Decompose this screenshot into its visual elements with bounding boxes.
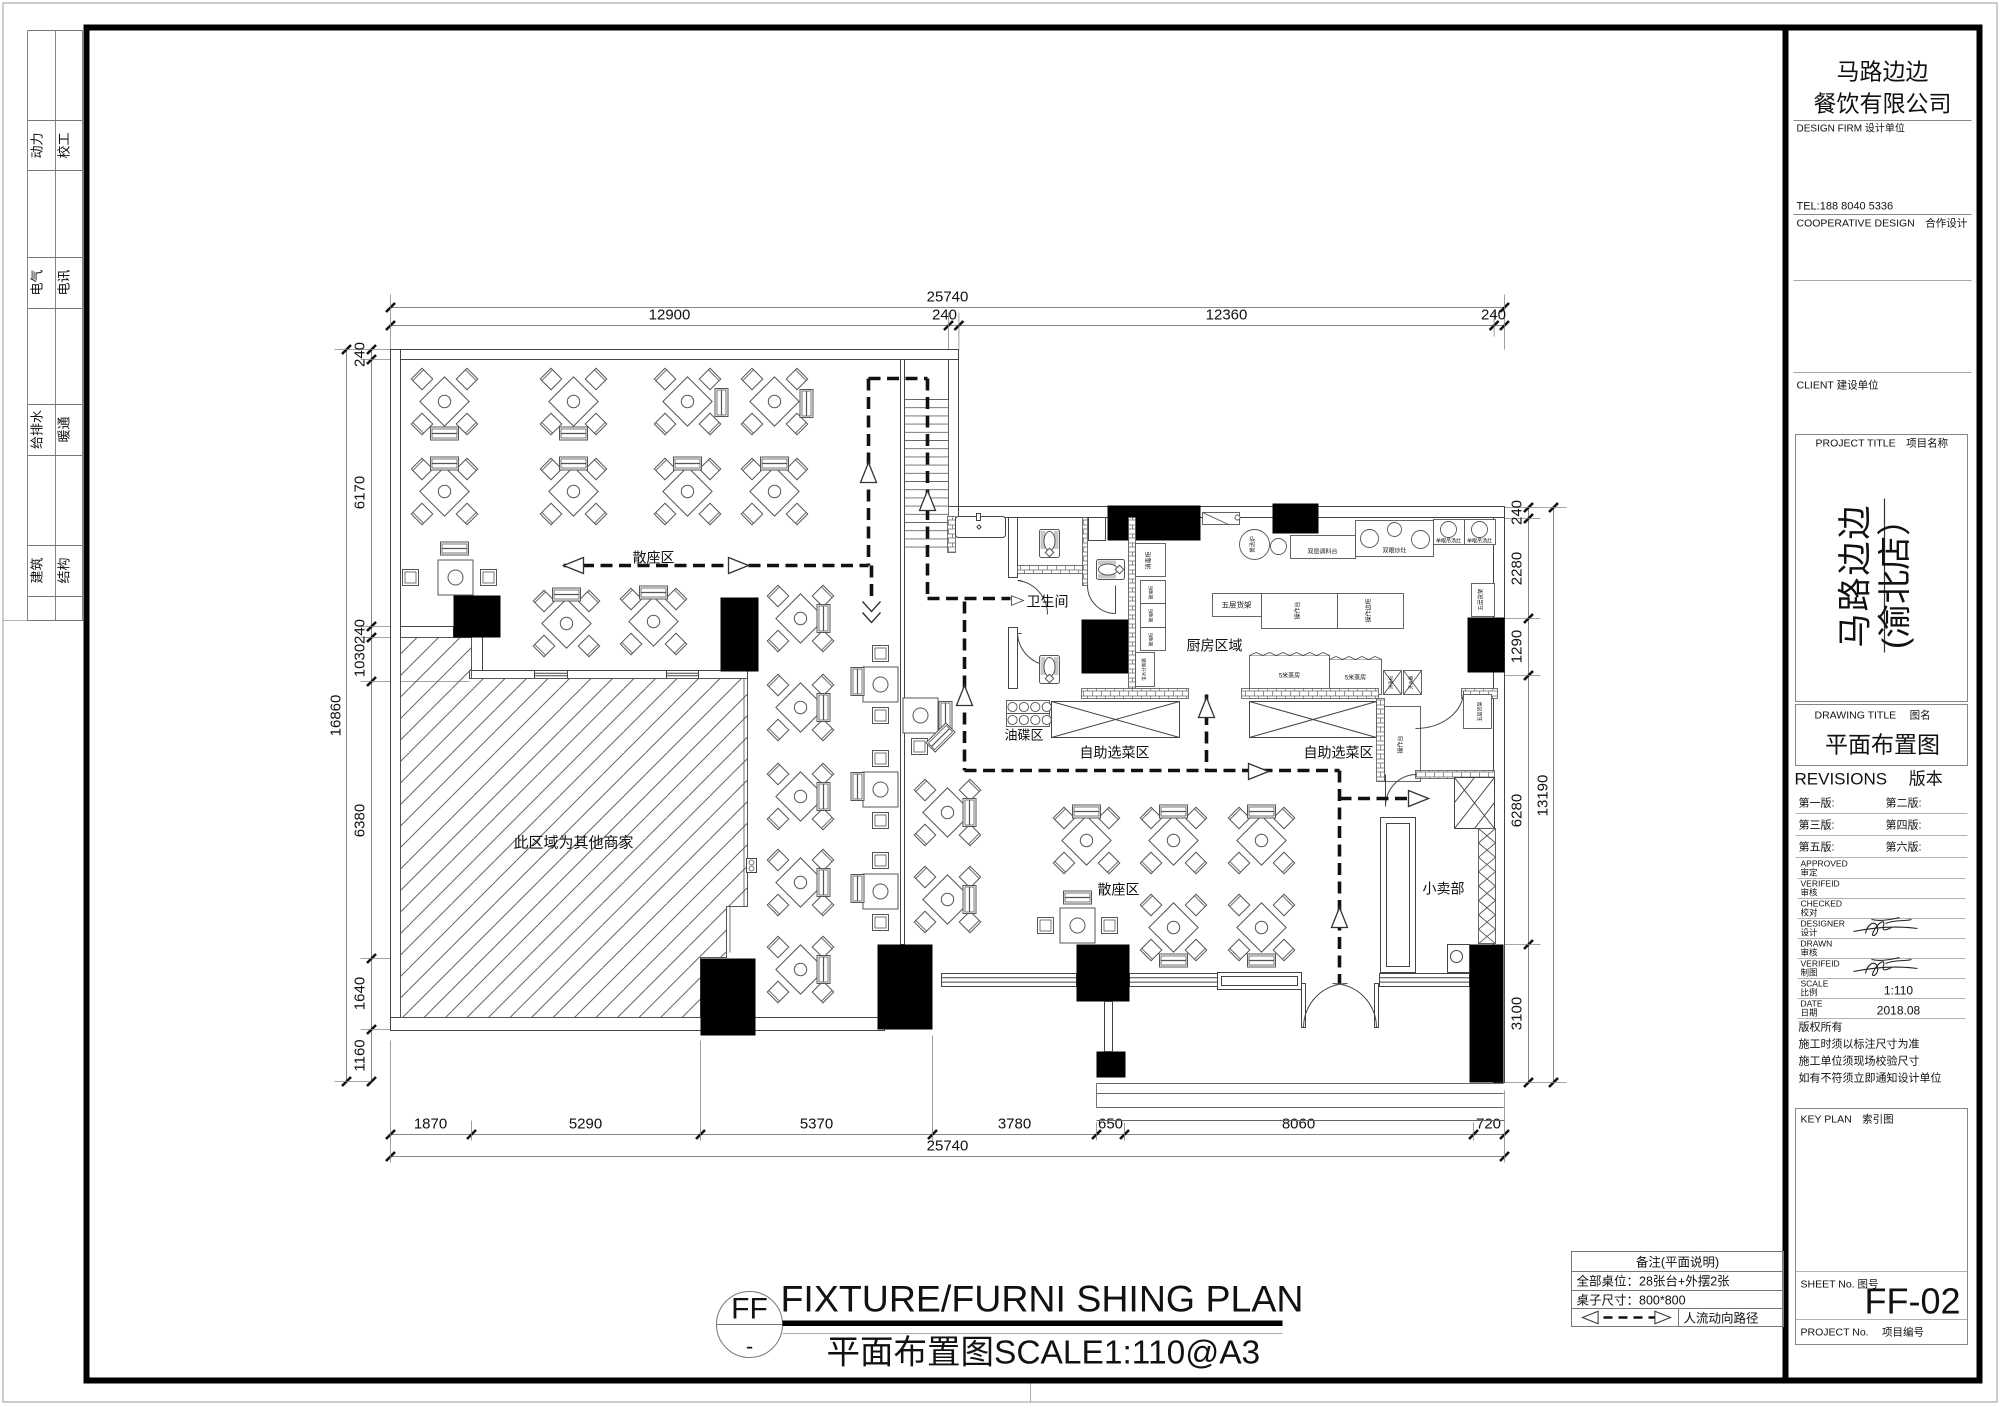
svg-text:1640: 1640 [352,977,369,1010]
svg-text:12360: 12360 [1206,307,1248,324]
svg-text:第三版:: 第三版: [1799,818,1835,832]
svg-text:3100: 3100 [1509,997,1526,1030]
svg-text:散座区: 散座区 [1098,882,1140,898]
svg-text:REVISIONS 版本: REVISIONS 版本 [1795,770,1943,789]
svg-text:TEL:188 8040 5336: TEL:188 8040 5336 [1797,201,1894,213]
svg-text:COOPERATIVE DESIGN 合作设计: COOPERATIVE DESIGN 合作设计 [1797,217,1968,230]
svg-text:五层货架: 五层货架 [1477,588,1485,611]
svg-text:第二版:: 第二版: [1886,796,1922,810]
svg-text:240: 240 [352,619,369,644]
svg-text:6280: 6280 [1509,794,1526,827]
svg-text:1870: 1870 [414,1116,447,1133]
svg-text:自助选菜区: 自助选菜区 [1080,745,1150,761]
svg-text:厨房区域: 厨房区域 [1187,638,1243,654]
svg-text:全部桌位：28张台+外摆2张: 全部桌位：28张台+外摆2张 [1577,1274,1731,1289]
svg-text:第六版:: 第六版: [1886,840,1922,854]
svg-text:日期: 日期 [1801,1008,1818,1018]
svg-text:小卖部: 小卖部 [1423,881,1465,897]
svg-text:建筑: 建筑 [30,557,45,583]
svg-text:16860: 16860 [328,695,345,737]
svg-text:马路边边: 马路边边 [1837,59,1929,85]
svg-text:单眼吊汤灶: 单眼吊汤灶 [1436,538,1461,545]
svg-text:桌子尺寸：800*800: 桌子尺寸：800*800 [1577,1294,1686,1308]
svg-text:5370: 5370 [800,1116,833,1133]
svg-text:1030: 1030 [352,644,369,677]
svg-text:第一版:: 第一版: [1799,796,1835,810]
svg-text:PROJECT No. 项目编号: PROJECT No. 项目编号 [1801,1326,1925,1339]
svg-text:2280: 2280 [1509,552,1526,585]
svg-text:1160: 1160 [352,1039,369,1071]
svg-text:审定: 审定 [1801,868,1819,878]
svg-text:(渝北店）: (渝北店） [1877,502,1915,649]
svg-text:餐饮有限公司: 餐饮有限公司 [1814,91,1952,117]
svg-text:操作台: 操作台 [1294,601,1302,619]
svg-text:6170: 6170 [352,476,369,509]
svg-text:玻璃柜: 玻璃柜 [1148,585,1155,599]
svg-text:FF-02: FF-02 [1864,1281,1960,1322]
svg-text:240: 240 [352,342,369,367]
svg-text:1290: 1290 [1509,630,1526,663]
svg-text:操作台: 操作台 [1397,735,1405,753]
svg-text:5米蒸房: 5米蒸房 [1279,672,1300,680]
svg-text:消毒柜: 消毒柜 [1145,551,1153,569]
svg-text:13190: 13190 [1535,775,1552,817]
svg-text:25740: 25740 [927,289,969,306]
svg-text:校工: 校工 [57,132,72,158]
svg-text:PROJECT TITLE 项目名称: PROJECT TITLE 项目名称 [1816,437,1949,450]
svg-text:操作边柜: 操作边柜 [1365,598,1373,622]
svg-text:泔水分离器: 泔水分离器 [1141,658,1148,681]
svg-text:电讯: 电讯 [57,269,72,295]
svg-text:五层货架: 五层货架 [1222,600,1252,610]
svg-text:FIXTURE/FURNI SHING PLAN: FIXTURE/FURNI SHING PLAN [781,1278,1304,1320]
svg-text:6380: 6380 [352,804,369,837]
svg-text:消毒柜: 消毒柜 [1388,675,1395,689]
svg-text:给排水: 给排水 [30,410,45,449]
svg-text:油碟区: 油碟区 [1005,728,1044,743]
svg-text:720: 720 [1476,1116,1501,1133]
svg-text:8060: 8060 [1282,1116,1315,1133]
svg-text:施工时须以标注尺寸为准: 施工时须以标注尺寸为准 [1799,1037,1920,1051]
svg-text:煲汤炉: 煲汤炉 [1249,536,1257,553]
svg-text:玻璃柜: 玻璃柜 [1148,632,1155,646]
svg-text:暖通: 暖通 [57,416,72,442]
svg-text:240: 240 [932,307,957,324]
svg-text:1:110: 1:110 [1884,984,1913,998]
svg-text:五层货架: 五层货架 [1477,701,1484,721]
svg-text:5米蒸房: 5米蒸房 [1345,674,1366,682]
svg-text:审核: 审核 [1801,888,1819,898]
svg-text:校对: 校对 [1801,908,1819,918]
svg-text:240: 240 [1481,307,1506,324]
svg-text:3780: 3780 [998,1116,1031,1133]
svg-text:240: 240 [1509,500,1526,525]
svg-text:散座区: 散座区 [633,550,675,566]
svg-text:动力: 动力 [30,132,45,158]
svg-text:第四版:: 第四版: [1886,818,1922,832]
svg-text:马路边边: 马路边边 [1837,504,1875,648]
svg-text:25740: 25740 [927,1138,969,1155]
svg-text:版权所有: 版权所有 [1799,1020,1843,1034]
svg-text:KEY PLAN 索引图: KEY PLAN 索引图 [1801,1113,1894,1126]
svg-text:平面布置图SCALE1:110@A3: 平面布置图SCALE1:110@A3 [827,1335,1261,1372]
svg-text:平面布置图: 平面布置图 [1825,732,1940,758]
svg-text:12900: 12900 [649,307,691,324]
svg-text:此区域为其他商家: 此区域为其他商家 [514,835,634,852]
svg-text:开水器: 开水器 [1408,675,1415,689]
svg-text:制图: 制图 [1801,968,1818,978]
svg-text:2018.08: 2018.08 [1877,1004,1921,1018]
svg-text:备注(平面说明): 备注(平面说明) [1636,1255,1719,1270]
svg-text:玻璃柜: 玻璃柜 [1148,608,1155,622]
svg-text:审核: 审核 [1801,948,1819,958]
svg-text:人流动向路径: 人流动向路径 [1684,1311,1759,1326]
svg-text:-: - [746,1334,753,1359]
svg-text:卫生间: 卫生间 [1027,594,1069,610]
svg-text:施工单位须现场校验尺寸: 施工单位须现场校验尺寸 [1799,1054,1920,1068]
svg-text:单眼吊汤灶: 单眼吊汤灶 [1467,538,1492,545]
svg-text:结构: 结构 [57,557,72,583]
svg-text:DESIGN FIRM 设计单位: DESIGN FIRM 设计单位 [1797,122,1905,135]
svg-text:CLIENT 建设单位: CLIENT 建设单位 [1797,379,1880,392]
svg-text:设计: 设计 [1801,928,1819,938]
svg-text:双层调料台: 双层调料台 [1307,548,1337,556]
svg-text:自助选菜区: 自助选菜区 [1304,745,1374,761]
svg-text:如有不符须立即通知设计单位: 如有不符须立即通知设计单位 [1799,1071,1942,1085]
svg-text:5290: 5290 [569,1116,602,1133]
svg-text:电气: 电气 [30,269,45,295]
svg-text:FF: FF [731,1293,768,1326]
svg-text:DRAWING TITLE 图名: DRAWING TITLE 图名 [1815,709,1931,722]
svg-text:650: 650 [1098,1116,1123,1133]
svg-text:双眼炒灶: 双眼炒灶 [1382,547,1406,555]
svg-text:第五版:: 第五版: [1799,840,1835,854]
svg-text:比例: 比例 [1801,988,1818,998]
